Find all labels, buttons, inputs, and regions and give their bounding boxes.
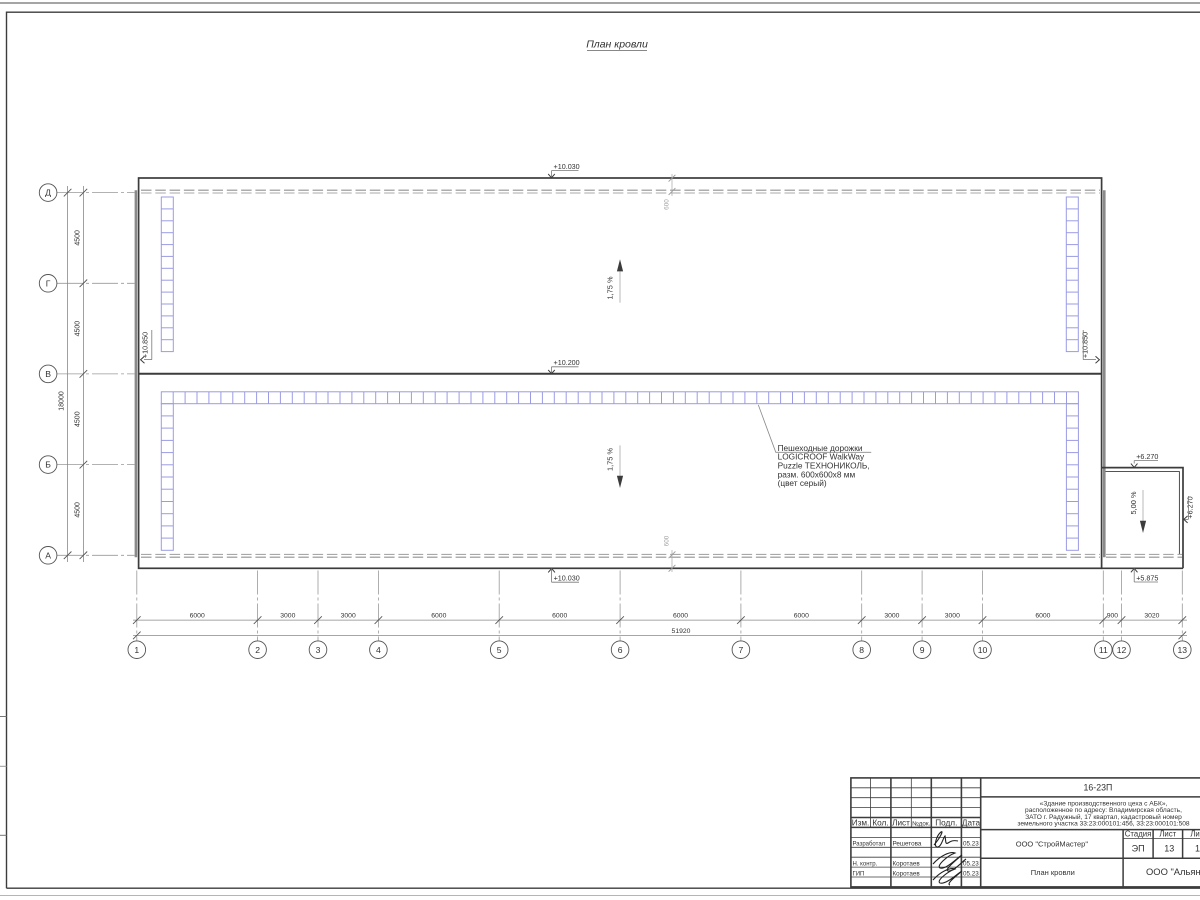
svg-text:Лист: Лист	[1159, 830, 1176, 839]
svg-text:Коротаев: Коротаев	[893, 870, 921, 877]
svg-text:№док.: №док.	[912, 821, 930, 828]
svg-text:600: 600	[663, 535, 670, 546]
svg-text:+10.030: +10.030	[554, 574, 580, 583]
svg-text:51920: 51920	[672, 628, 691, 635]
svg-text:05.23: 05.23	[963, 870, 979, 877]
svg-text:1,75 %: 1,75 %	[606, 448, 615, 471]
svg-text:+5.875: +5.875	[1136, 573, 1158, 582]
svg-text:13: 13	[1164, 844, 1174, 854]
svg-text:1,75 %: 1,75 %	[606, 276, 615, 299]
svg-text:6000: 6000	[794, 612, 809, 619]
svg-text:Г: Г	[46, 278, 51, 288]
svg-text:1: 1	[1195, 844, 1200, 854]
svg-text:Лист: Лист	[892, 819, 910, 828]
svg-text:3000: 3000	[280, 612, 295, 619]
svg-text:+10.200: +10.200	[554, 358, 580, 367]
svg-text:2: 2	[255, 645, 260, 655]
svg-text:6000: 6000	[431, 612, 446, 619]
svg-text:Подл.: Подл.	[935, 819, 957, 828]
svg-text:ГИП: ГИП	[853, 871, 865, 877]
svg-text:Д: Д	[45, 188, 51, 198]
svg-text:Кол.: Кол.	[872, 819, 888, 828]
svg-text:Дата: Дата	[962, 819, 981, 828]
svg-text:+10.850: +10.850	[140, 332, 149, 358]
svg-text:6000: 6000	[673, 612, 688, 619]
svg-text:11: 11	[1099, 645, 1108, 655]
svg-text:05.23: 05.23	[963, 861, 979, 868]
svg-text:Решетова: Решетова	[893, 841, 922, 848]
svg-text:5,00 %: 5,00 %	[1129, 491, 1138, 514]
svg-text:900: 900	[1107, 612, 1119, 619]
svg-text:А: А	[45, 550, 51, 560]
svg-text:13: 13	[1178, 645, 1188, 655]
svg-text:(цвет серый): (цвет серый)	[778, 478, 827, 488]
svg-text:6000: 6000	[1035, 612, 1050, 619]
svg-text:3000: 3000	[945, 612, 960, 619]
svg-text:План кровли: План кровли	[1031, 868, 1075, 877]
svg-text:ООО "Альянс": ООО "Альянс"	[1146, 866, 1200, 877]
svg-text:1: 1	[134, 645, 139, 655]
svg-text:Н. контр.: Н. контр.	[853, 862, 878, 868]
svg-text:земельного участка 33:23:00010: земельного участка 33:23:000101:456, 33:…	[1017, 821, 1190, 828]
svg-text:10: 10	[978, 645, 988, 655]
svg-text:ЭП: ЭП	[1132, 844, 1145, 854]
svg-text:3000: 3000	[341, 612, 356, 619]
svg-text:3020: 3020	[1144, 612, 1159, 619]
svg-text:+10.030: +10.030	[554, 162, 580, 171]
svg-text:+6.270: +6.270	[1186, 496, 1195, 518]
svg-text:6: 6	[618, 645, 623, 655]
svg-text:3000: 3000	[884, 612, 899, 619]
svg-text:План кровли: План кровли	[586, 39, 648, 51]
svg-text:12: 12	[1117, 645, 1127, 655]
svg-text:4500: 4500	[75, 502, 82, 518]
svg-text:6000: 6000	[552, 612, 567, 619]
svg-text:4500: 4500	[75, 411, 82, 427]
svg-text:Лис: Лис	[1190, 830, 1200, 839]
svg-text:3: 3	[316, 645, 321, 655]
svg-text:Коротаев: Коротаев	[893, 861, 921, 868]
svg-text:8: 8	[859, 645, 864, 655]
svg-text:+6.270: +6.270	[1136, 452, 1158, 461]
svg-text:Б: Б	[45, 460, 51, 470]
svg-text:4500: 4500	[75, 321, 82, 337]
svg-text:7: 7	[739, 645, 744, 655]
svg-text:6000: 6000	[190, 612, 205, 619]
svg-text:05.23: 05.23	[963, 841, 979, 848]
svg-text:9: 9	[920, 645, 925, 655]
svg-text:+10.850: +10.850	[1081, 332, 1090, 358]
svg-text:Изм.: Изм.	[852, 819, 870, 828]
svg-text:Стадия: Стадия	[1125, 830, 1152, 839]
svg-text:5: 5	[497, 645, 502, 655]
svg-text:18000: 18000	[59, 391, 66, 411]
svg-text:4: 4	[376, 645, 381, 655]
svg-text:4500: 4500	[75, 230, 82, 246]
svg-text:600: 600	[663, 199, 670, 210]
svg-text:16-23П: 16-23П	[1083, 782, 1112, 792]
svg-text:В: В	[45, 369, 51, 379]
svg-text:ООО "СтройМастер": ООО "СтройМастер"	[1016, 839, 1089, 848]
svg-text:Разработал: Разработал	[853, 842, 886, 848]
